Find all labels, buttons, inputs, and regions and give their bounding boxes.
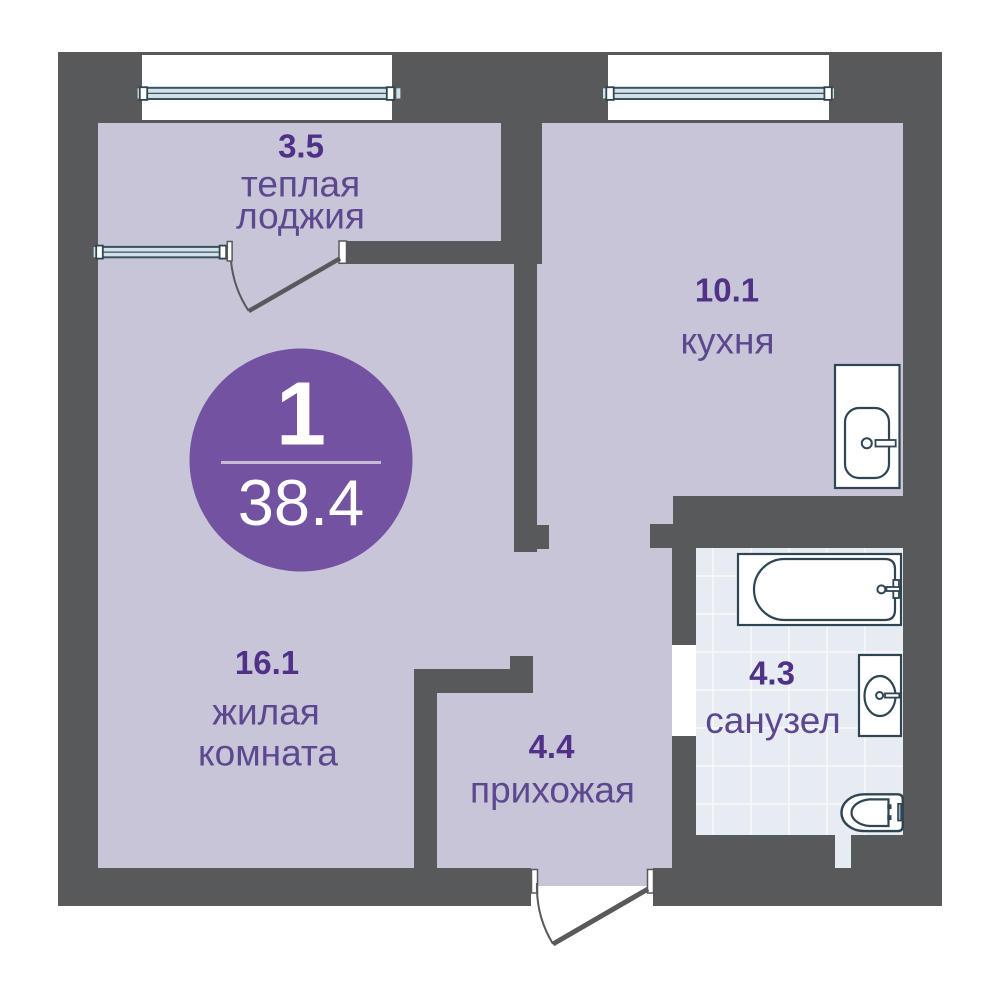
svg-text:10.1: 10.1	[695, 272, 759, 309]
svg-text:комната: комната	[198, 733, 338, 774]
svg-text:прихожая: прихожая	[470, 770, 635, 811]
svg-text:лоджия: лоджия	[236, 196, 365, 237]
svg-text:16.1: 16.1	[235, 644, 299, 681]
svg-text:4.4: 4.4	[529, 728, 576, 765]
svg-text:санузел: санузел	[705, 700, 841, 741]
svg-text:3.5: 3.5	[278, 128, 324, 165]
svg-text:38.4: 38.4	[238, 466, 365, 539]
svg-text:жилая: жилая	[212, 692, 320, 733]
svg-text:1: 1	[276, 365, 326, 465]
svg-text:кухня: кухня	[680, 321, 774, 362]
svg-text:4.3: 4.3	[749, 655, 795, 692]
